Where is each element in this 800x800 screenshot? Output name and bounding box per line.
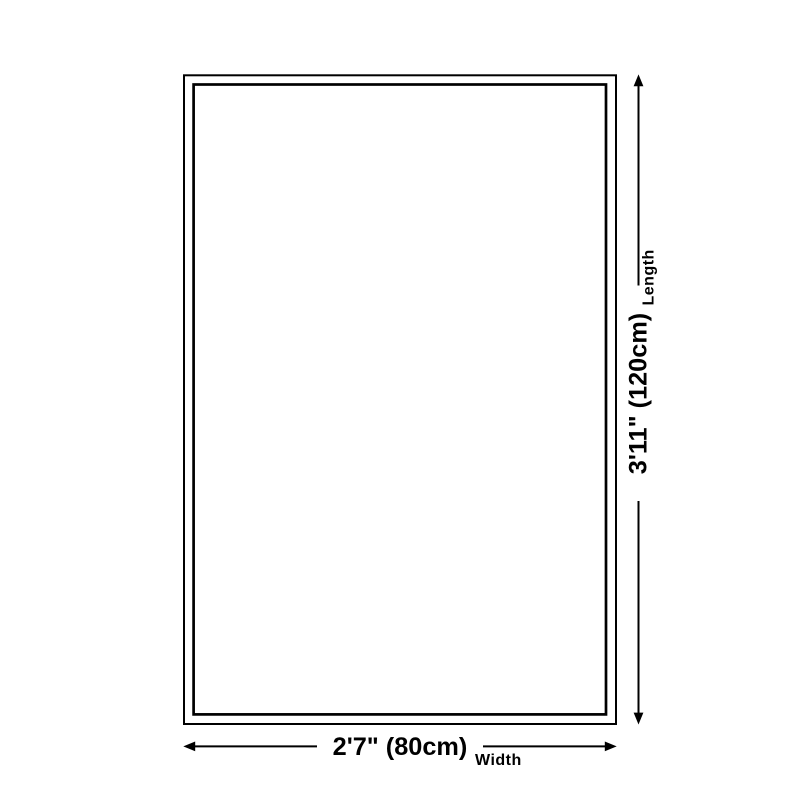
svg-text:3'11" (120cm): 3'11" (120cm) bbox=[625, 313, 653, 474]
svg-text:Length: Length bbox=[641, 249, 658, 305]
svg-text:Width: Width bbox=[475, 752, 522, 769]
svg-text:2'7" (80cm): 2'7" (80cm) bbox=[333, 733, 468, 761]
